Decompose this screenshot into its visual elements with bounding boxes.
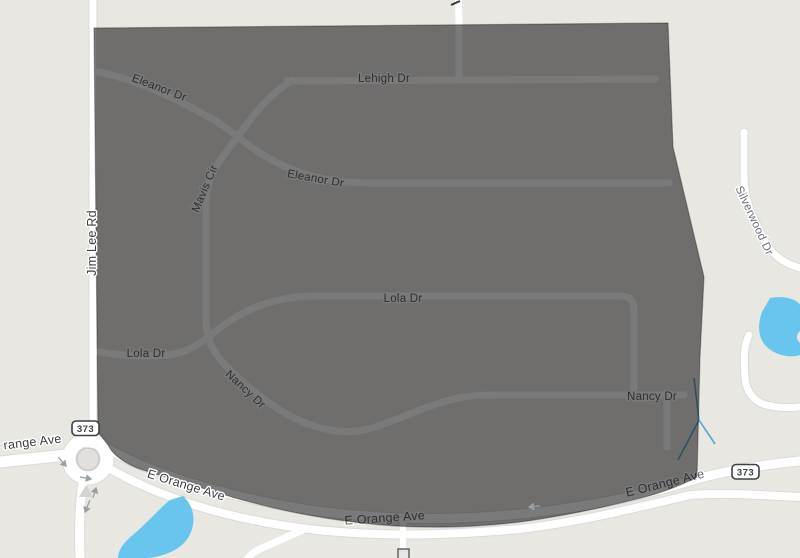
roundabout-island <box>77 448 99 470</box>
building-icon <box>398 549 409 558</box>
map-canvas[interactable]: Eleanor Dr Lehigh Dr Mavis Cir Eleanor D… <box>0 0 800 558</box>
route-badge-east: 373 <box>732 465 759 480</box>
road-south-exit <box>80 477 84 558</box>
route-badge-west: 373 <box>72 421 99 436</box>
route-badge-west-text: 373 <box>77 424 94 435</box>
route-badge-east-text: 373 <box>737 468 754 479</box>
map-svg: Eleanor Dr Lehigh Dr Mavis Cir Eleanor D… <box>0 0 800 558</box>
label-jim-lee-rd: Jim Lee Rd <box>85 210 99 276</box>
region-overlay-polygon[interactable] <box>94 23 704 527</box>
road-west-exit <box>0 455 66 462</box>
